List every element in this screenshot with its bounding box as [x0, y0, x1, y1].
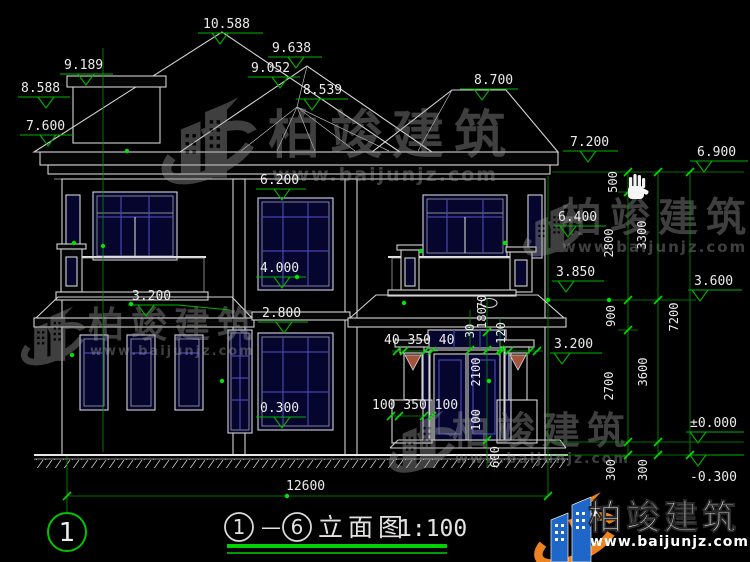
dim-capital: 40 350 40	[384, 333, 454, 348]
watermark-brand: 柏竣建筑	[88, 305, 260, 346]
dim-base: 100 350 100	[372, 398, 458, 413]
title-axis-end: 6	[291, 515, 304, 539]
dim-2800mm: 2800	[602, 229, 616, 258]
dim-7200mm: 7200	[667, 303, 681, 332]
chimney-cap	[67, 76, 166, 87]
watermark-url: www.baijunjz.com	[90, 344, 255, 359]
dim-2800: 2.800	[262, 306, 301, 321]
watermark-url: www.baijunjz.com	[272, 164, 498, 186]
title-name: 立面图	[318, 513, 408, 542]
dim-0000: ±0.000	[690, 416, 737, 431]
dim-500: 500	[606, 171, 620, 193]
dim-10588: 10.588	[203, 17, 250, 32]
dim-9638: 9.638	[272, 41, 311, 56]
title-scale: 1:100	[398, 516, 467, 542]
brand-name: 柏竣建筑	[588, 498, 740, 538]
window-2f-left	[93, 192, 177, 260]
dim-6900: 6.900	[697, 145, 736, 160]
dim-6200: 6.200	[260, 173, 299, 188]
dim-300-mid: 300	[636, 459, 650, 481]
watermark-top: 柏竣建筑 www.baijunjz.com	[159, 97, 516, 190]
dim-3600mm: 3600	[636, 358, 650, 387]
watermark-brand: 柏竣建筑	[268, 106, 516, 166]
dim-4000: 4.000	[260, 261, 299, 276]
drawing-title: 1 — 6 立面图 1:100	[225, 513, 467, 553]
dim-9052: 9.052	[251, 61, 290, 76]
dim-3200-right: 3.200	[554, 337, 593, 352]
title-axis-start: 1	[233, 515, 246, 539]
dim-3200-left: 3.200	[132, 289, 171, 304]
dim-12600: 12600	[286, 479, 325, 494]
watermark-url: www.baijunjz.com	[562, 238, 747, 256]
dim-100: 100	[469, 409, 483, 431]
dim-600: 600	[488, 446, 502, 468]
dim-2700: 2700	[602, 372, 616, 401]
window-2f-right	[423, 195, 507, 257]
brand-url: www.baijunjz.com	[590, 534, 749, 550]
dim-3850: 3.850	[556, 265, 595, 280]
dim-120: 120	[494, 322, 508, 344]
dim-3600: 3.600	[694, 274, 733, 289]
dim-9189: 9.189	[64, 58, 103, 73]
title-separator: —	[261, 515, 281, 539]
axis-bubble-label: 1	[59, 518, 76, 548]
dim-300-inner: 300	[604, 459, 618, 481]
dim-0300: 0.300	[260, 401, 299, 416]
dim-8539: 8.539	[303, 83, 342, 98]
dim-3300: 3300	[635, 221, 649, 250]
logo-tower-left	[551, 513, 568, 562]
dim-2100: 2100	[469, 358, 483, 387]
dim-180: 180	[475, 307, 489, 329]
dim-8588: 8.588	[21, 81, 60, 96]
dim-minus-0300: -0.300	[690, 470, 737, 485]
dim-7600: 7.600	[26, 119, 65, 134]
dim-8700: 8.700	[474, 73, 513, 88]
dim-6400: 6.400	[558, 210, 597, 225]
elevation-drawing-canvas[interactable]: 柏竣建筑 www.baijunjz.com 柏竣建筑 www.baijunjz.…	[0, 0, 750, 562]
dim-70: 70	[475, 295, 489, 309]
dim-7200: 7.200	[570, 135, 609, 150]
dim-900: 900	[604, 305, 618, 327]
